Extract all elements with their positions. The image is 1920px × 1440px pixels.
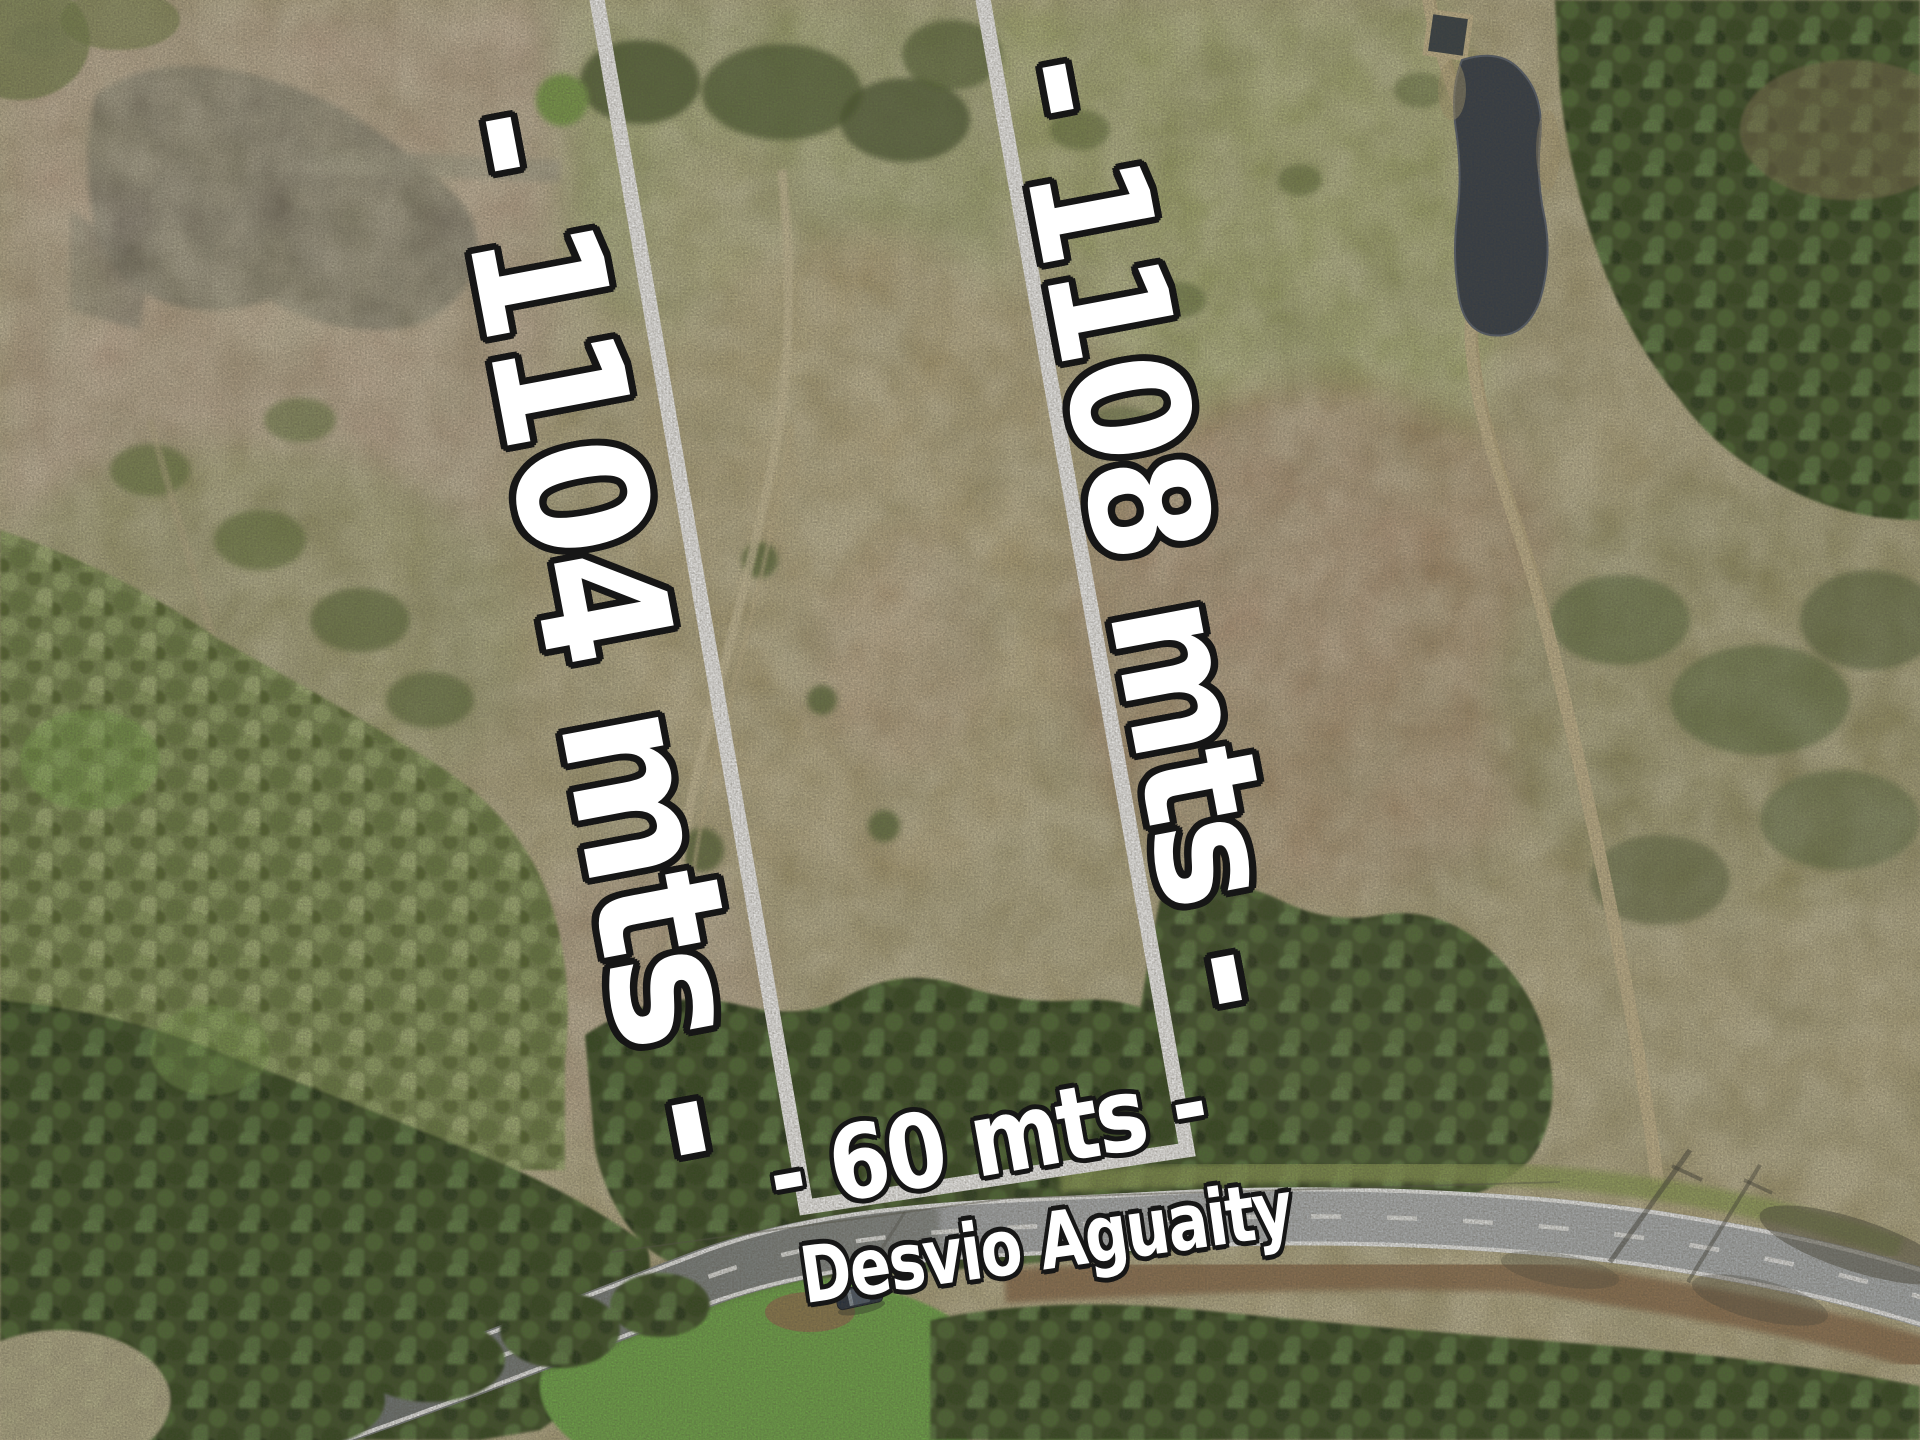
aerial-photo: - 1104 mts - - 1108 mts - - 60 mts - Des… xyxy=(0,0,1920,1440)
